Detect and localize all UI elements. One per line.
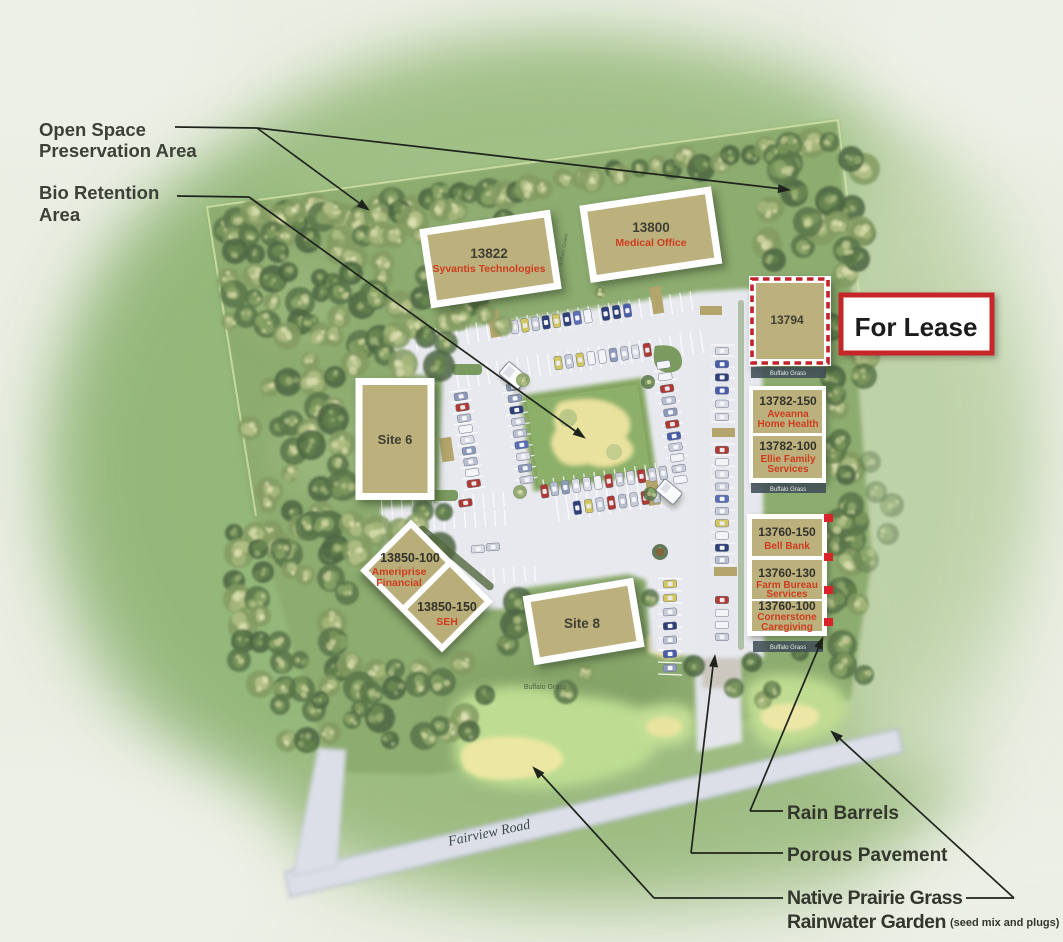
svg-text:Syvantis Technologies: Syvantis Technologies [432,263,545,275]
svg-text:Bell Bank: Bell Bank [764,541,810,552]
svg-text:Preservation Area: Preservation Area [39,140,197,161]
svg-text:Site 6: Site 6 [378,432,413,447]
svg-text:13800: 13800 [632,220,670,235]
svg-text:(seed mix and plugs): (seed mix and plugs) [950,917,1060,929]
svg-text:Financial: Financial [376,577,422,589]
svg-text:Area: Area [39,204,81,225]
svg-text:For Lease: For Lease [855,312,978,342]
svg-text:Buffalo Grass: Buffalo Grass [770,645,806,651]
svg-text:Site 8: Site 8 [564,616,601,631]
svg-text:13794: 13794 [770,313,804,327]
svg-text:Native Prairie Grass: Native Prairie Grass [787,887,963,909]
svg-text:Caregiving: Caregiving [761,622,813,633]
svg-text:Porous Pavement: Porous Pavement [787,845,948,866]
svg-text:13850-150: 13850-150 [417,600,477,614]
svg-text:Buffalo Grass: Buffalo Grass [770,371,806,377]
svg-text:13760-150: 13760-150 [758,525,816,539]
svg-text:13782-150: 13782-150 [759,394,817,408]
svg-text:13822: 13822 [470,246,508,261]
svg-text:Open Space: Open Space [39,119,146,140]
svg-text:Medical Office: Medical Office [615,237,686,249]
svg-text:13782-100: 13782-100 [759,439,817,453]
svg-text:13760-130: 13760-130 [758,566,816,580]
svg-text:Buffalo Grass: Buffalo Grass [524,684,567,691]
svg-text:Buffalo Grass: Buffalo Grass [770,487,806,493]
svg-text:Bio Retention: Bio Retention [39,182,159,203]
svg-text:Rainwater Garden: Rainwater Garden [787,911,946,933]
svg-text:13850-100: 13850-100 [380,551,440,565]
svg-text:Home Health: Home Health [757,419,818,430]
svg-text:SEH: SEH [436,616,458,628]
svg-text:13760-100: 13760-100 [758,599,816,613]
svg-text:Rain Barrels: Rain Barrels [787,803,899,824]
svg-text:Services: Services [767,464,809,475]
